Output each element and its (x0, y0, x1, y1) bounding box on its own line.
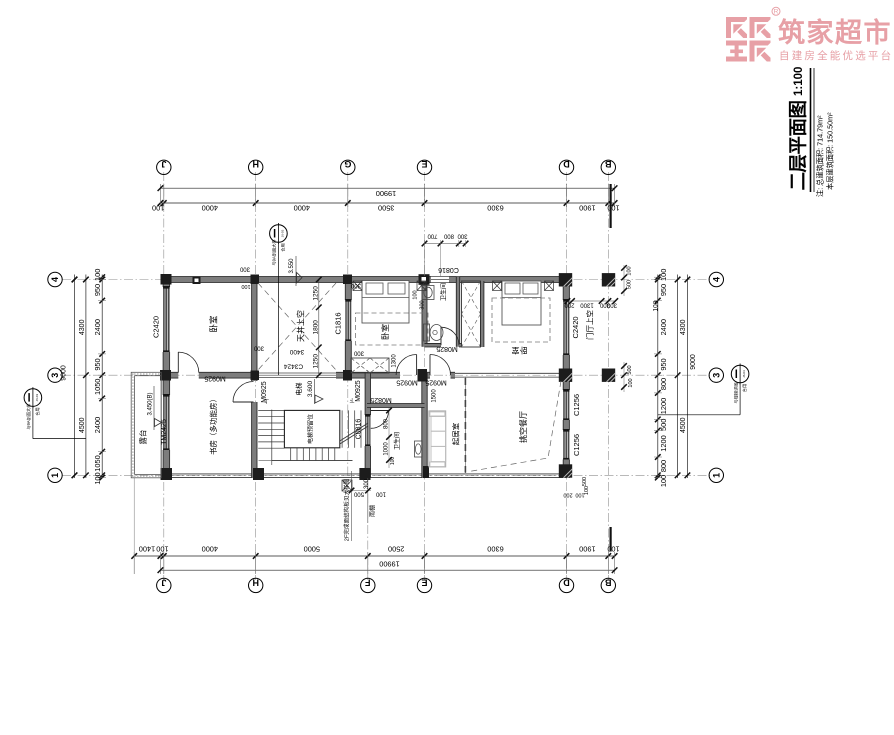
svg-text:100: 100 (375, 490, 386, 496)
svg-text:100: 100 (390, 457, 396, 466)
svg-text:3.600: 3.600 (307, 380, 314, 397)
svg-text:注: 总建筑面积: 714.79m²: 注: 总建筑面积: 714.79m² (816, 115, 825, 197)
svg-text:4: 4 (712, 277, 722, 282)
svg-text:E: E (421, 159, 427, 169)
svg-text:与9A剖面大样: 与9A剖面大样 (271, 239, 278, 265)
svg-text:300: 300 (364, 478, 370, 489)
svg-text:300: 300 (239, 265, 250, 271)
svg-text:800: 800 (443, 232, 454, 238)
svg-text:700: 700 (427, 232, 438, 238)
svg-text:300: 300 (253, 344, 264, 350)
svg-text:1050: 1050 (93, 379, 102, 395)
svg-text:4000: 4000 (202, 545, 218, 554)
svg-text:M0925: M0925 (355, 380, 362, 402)
svg-text:500: 500 (582, 477, 588, 486)
svg-text:卧室: 卧室 (209, 315, 219, 333)
svg-text:500: 500 (353, 490, 364, 496)
svg-text:J: J (161, 577, 166, 587)
svg-text:5000: 5000 (304, 545, 320, 554)
svg-text:1900: 1900 (579, 204, 595, 213)
svg-text:C2420: C2420 (571, 316, 580, 338)
svg-text:300: 300 (420, 300, 426, 309)
svg-text:950: 950 (93, 358, 102, 370)
svg-text:4300: 4300 (79, 319, 86, 335)
svg-text:M0825: M0825 (370, 396, 392, 403)
svg-text:2500: 2500 (388, 545, 404, 554)
svg-text:300: 300 (457, 232, 468, 238)
svg-text:F: F (365, 577, 371, 587)
svg-text:4300: 4300 (680, 319, 687, 335)
svg-text:1300: 1300 (580, 301, 594, 307)
svg-text:C2420: C2420 (152, 316, 161, 338)
svg-text:TM2425: TM2425 (161, 419, 168, 445)
svg-text:100: 100 (659, 269, 668, 281)
svg-text:6300: 6300 (487, 204, 503, 213)
svg-text:1: 1 (50, 473, 60, 478)
svg-text:1500: 1500 (432, 389, 438, 403)
svg-text:C1256: C1256 (572, 394, 581, 416)
svg-text:与9A剖面大样: 与9A剖面大样 (25, 404, 32, 430)
svg-text:上: 上 (264, 398, 269, 405)
svg-text:H: H (252, 577, 259, 587)
svg-text:1000: 1000 (384, 442, 390, 456)
svg-text:3.450(B): 3.450(B) (148, 392, 154, 415)
svg-text:6300: 6300 (487, 545, 503, 554)
svg-text:合用: 合用 (280, 243, 287, 251)
svg-text:露台: 露台 (138, 430, 148, 445)
svg-text:门厅上空: 门厅上空 (585, 310, 595, 340)
svg-text:J6-03: J6-03 (281, 229, 285, 237)
svg-text:100: 100 (607, 545, 619, 554)
svg-text:D: D (563, 159, 570, 169)
svg-text:2400: 2400 (659, 319, 668, 335)
svg-text:C1816: C1816 (334, 312, 343, 334)
svg-text:200: 200 (564, 301, 575, 307)
svg-text:J6-03: J6-03 (35, 394, 39, 402)
svg-text:950: 950 (659, 284, 668, 296)
svg-text:M0925: M0925 (204, 375, 226, 382)
svg-text:100: 100 (652, 300, 659, 311)
svg-text:500: 500 (627, 365, 633, 374)
svg-text:书房（多功能房）: 书房（多功能房） (208, 395, 218, 455)
svg-text:C1256: C1256 (572, 434, 581, 456)
svg-text:800: 800 (659, 378, 668, 390)
svg-text:4: 4 (50, 277, 60, 282)
svg-text:下: 下 (349, 397, 354, 403)
svg-text:950: 950 (659, 358, 668, 370)
svg-text:3: 3 (50, 373, 60, 378)
svg-text:M0925: M0925 (425, 379, 447, 386)
svg-text:M0925: M0925 (396, 379, 418, 386)
svg-text:100: 100 (152, 204, 164, 213)
svg-text:电梯预留位: 电梯预留位 (307, 414, 315, 444)
svg-text:1400: 1400 (139, 545, 155, 554)
svg-text:500: 500 (627, 280, 633, 289)
svg-text:9000: 9000 (690, 354, 697, 370)
svg-text:800: 800 (659, 460, 668, 472)
svg-text:300: 300 (353, 349, 364, 355)
svg-text:二层平面图: 二层平面图 (788, 100, 809, 190)
svg-text:C3424: C3424 (284, 363, 304, 370)
svg-text:卧室: 卧室 (512, 346, 528, 356)
svg-text:R: R (774, 9, 779, 16)
svg-text:800: 800 (384, 418, 390, 429)
svg-text:1250: 1250 (312, 286, 319, 301)
svg-text:2400: 2400 (93, 417, 102, 433)
svg-text:E: E (421, 577, 427, 587)
svg-text:4500: 4500 (680, 417, 687, 433)
svg-text:1250: 1250 (312, 354, 319, 369)
svg-text:100: 100 (607, 204, 619, 213)
svg-text:1900: 1900 (579, 545, 595, 554)
svg-text:100: 100 (628, 378, 634, 387)
svg-text:天井上空: 天井上空 (295, 310, 305, 342)
svg-text:100: 100 (93, 472, 102, 484)
svg-text:300: 300 (350, 282, 361, 288)
svg-text:1200: 1200 (659, 398, 668, 414)
svg-text:C0816: C0816 (356, 419, 363, 440)
svg-text:1:100: 1:100 (793, 67, 805, 96)
svg-text:B: B (605, 577, 612, 587)
svg-text:19900: 19900 (379, 560, 400, 569)
svg-text:3500: 3500 (378, 204, 394, 213)
svg-text:卧室: 卧室 (380, 324, 390, 340)
svg-text:卫生间: 卫生间 (440, 283, 448, 301)
svg-text:G: G (344, 159, 351, 169)
svg-text:4500: 4500 (79, 417, 86, 433)
svg-text:4000: 4000 (202, 204, 218, 213)
svg-text:自建房全能优选平台: 自建房全能优选平台 (779, 49, 893, 62)
svg-text:卫生间: 卫生间 (393, 432, 401, 450)
svg-text:起居室: 起居室 (451, 422, 461, 445)
svg-text:1800: 1800 (312, 320, 319, 335)
svg-text:本层建筑面积: 150.50m²: 本层建筑面积: 150.50m² (826, 112, 835, 190)
svg-text:B: B (605, 159, 612, 169)
svg-text:300: 300 (606, 301, 617, 307)
svg-text:1: 1 (712, 473, 722, 478)
svg-text:2F完成面结构板见大样图: 2F完成面结构板见大样图 (343, 478, 351, 541)
svg-text:100: 100 (575, 491, 584, 497)
svg-text:500: 500 (659, 419, 668, 431)
svg-text:100: 100 (627, 266, 633, 275)
svg-text:挑空餐厅: 挑空餐厅 (518, 411, 528, 443)
svg-text:J6-03: J6-03 (742, 370, 746, 378)
svg-text:950: 950 (93, 284, 102, 296)
svg-text:100: 100 (659, 475, 668, 487)
svg-text:100: 100 (413, 290, 419, 299)
svg-text:100: 100 (156, 545, 168, 554)
svg-text:J: J (161, 159, 166, 169)
svg-text:3400: 3400 (289, 348, 304, 355)
svg-text:M0825: M0825 (436, 345, 458, 352)
svg-text:2400: 2400 (93, 319, 102, 335)
svg-text:雨棚: 雨棚 (369, 505, 377, 517)
svg-text:电梯: 电梯 (294, 382, 303, 396)
svg-text:3: 3 (712, 373, 722, 378)
svg-text:与楼梯详图: 与楼梯详图 (732, 383, 739, 404)
svg-text:合用: 合用 (34, 407, 41, 415)
svg-text:1300: 1300 (392, 354, 398, 368)
svg-text:合用: 合用 (741, 384, 748, 392)
svg-text:1050: 1050 (93, 455, 102, 471)
svg-text:H: H (252, 159, 259, 169)
svg-text:D: D (563, 577, 570, 587)
svg-text:4000: 4000 (294, 204, 310, 213)
svg-text:200: 200 (563, 491, 572, 497)
svg-text:100: 100 (93, 269, 102, 281)
svg-text:C0816: C0816 (438, 266, 459, 273)
svg-text:100: 100 (241, 283, 250, 289)
svg-text:1200: 1200 (659, 435, 668, 451)
svg-text:3.550: 3.550 (289, 258, 295, 274)
svg-text:19900: 19900 (376, 189, 397, 198)
svg-text:筑家超市: 筑家超市 (778, 17, 892, 48)
